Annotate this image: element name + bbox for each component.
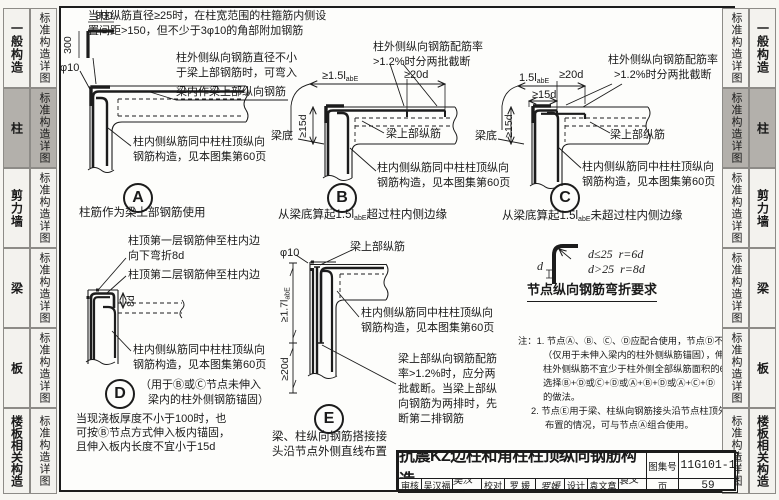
detail-e-caption1: 梁、柱纵向钢筋搭接接 [272, 430, 387, 446]
phi10-label-e: φ10 [280, 246, 299, 261]
detail-d-note3: 且伸入板内长度不宜小于15d [76, 440, 215, 455]
note-line-4: 选择Ⓑ+Ⓓ或Ⓒ+Ⓓ或Ⓐ+Ⓑ+Ⓓ或Ⓐ+Ⓒ+Ⓓ [543, 375, 715, 389]
inner-bar-note-a1: 柱内侧纵筋同中柱柱顶纵向 [133, 135, 265, 150]
cut-annotation-b1: 柱外侧纵向钢筋配筋率 [373, 40, 483, 55]
bend-requirement-symbol [546, 246, 578, 284]
sidebar-section-cell: 一般构造 [3, 8, 30, 88]
detail-d-note2: 可按Ⓑ节点方式伸入板内锚固， [76, 426, 230, 441]
cut-annotation-c1: 柱外侧纵向钢筋配筋率 [608, 53, 718, 68]
cut-annotation-e1: 梁上部纵向钢筋配筋 [398, 352, 497, 367]
dim-15d-horizontal-c: ≥15d [532, 88, 556, 103]
page-label: 页 [646, 478, 679, 493]
cut-annotation-e4: 向钢筋为两排时，先 [398, 397, 497, 412]
cut-annotation-e2: 率>1.2%时，应分两 [398, 367, 496, 382]
cut-annotation-e5: 断第二排钢筋 [398, 412, 464, 427]
sidebar-item-slab-related[interactable]: 楼板相关构造 标准构造详图 [3, 408, 57, 494]
sidebar-item-slab[interactable]: 板 标准构造详图 [3, 328, 57, 408]
beam-top-bar-label-c: 梁上部纵筋 [610, 128, 665, 143]
review-signature: 吴汉福 [452, 478, 482, 493]
sidebar-right-item-column[interactable]: 标准构造详图 柱 [722, 88, 776, 168]
inner-bar-note-d1: 柱内侧纵筋同中柱柱顶纵向 [133, 343, 265, 358]
detail-c-caption: 从梁底算起1.5labE未超过柱内侧边缘 [502, 209, 683, 225]
dim-1p5labe-b: ≥1.5labE [322, 69, 358, 84]
detail-d-usage1: （用于Ⓑ或Ⓒ节点未伸入 [140, 378, 261, 393]
title-block: 抗震KZ边柱和角柱柱顶纵向钢筋构造 图集号 11G101-1 审核 吴汉福 吴汉… [396, 450, 736, 491]
dim-8d: 8d [124, 289, 138, 313]
sidebar-right-item-shear-wall[interactable]: 标准构造详图 剪力墙 [722, 168, 776, 248]
inner-bar-note-a2: 钢筋构造，见本图集第60页 [133, 150, 266, 165]
corner-bar-note-line1: 当柱纵筋直径≥25时，在柱宽范围的柱箍筋内侧设 [88, 9, 326, 24]
detail-d-usage2: 梁内的柱外侧钢筋锚固） [148, 393, 269, 408]
dim-20d-e: ≥20d [278, 347, 292, 391]
sidebar-right-item-general[interactable]: 标准构造详图 一般构造 [722, 8, 776, 88]
outer-bar-annotation-a1: 柱外侧纵向钢筋直径不小 [176, 51, 297, 66]
inner-bar-note-c2: 钢筋构造，见本图集第60页 [582, 175, 715, 190]
atlas-number-value: 11G101-1 [678, 452, 738, 479]
sidebar-item-beam[interactable]: 梁 标准构造详图 [3, 248, 57, 328]
cut-annotation-c2: >1.2%时分两批截断 [614, 68, 712, 83]
detail-d-note1: 当现浇板厚度不小于100时，也 [76, 412, 226, 427]
dim-15d-vertical-c: ≥15d [502, 106, 516, 146]
detail-d-marker: D [105, 379, 135, 409]
inner-bar-note-b1: 柱内侧纵筋同中柱柱顶纵向 [377, 161, 509, 176]
dim-1p5labe-c: 1.5labE [519, 71, 549, 86]
note-line-5: 的做法。 [543, 389, 580, 403]
cut-annotation-b2: >1.2%时分两批截断 [373, 55, 471, 70]
inner-bar-note-e1: 柱内侧纵筋同中柱柱顶纵向 [361, 306, 493, 321]
review-label: 审核 [398, 478, 422, 493]
atlas-page: { "sidebar": { "common_label": "标准构造详图",… [0, 0, 779, 500]
beam-top-bar-label-e: 梁上部纵筋 [350, 240, 405, 255]
note-line-7: 布置的情况，可与节点Ⓐ组合使用。 [545, 417, 694, 431]
sidebar-right-item-beam[interactable]: 标准构造详图 梁 [722, 248, 776, 328]
inner-bar-note-b2: 钢筋构造，见本图集第60页 [377, 176, 510, 191]
atlas-number-label: 图集号 [646, 452, 679, 479]
dim-20d-c: ≥20d [559, 68, 583, 83]
top-layer2-annotation-d: 柱顶第二层钢筋伸至柱内边 [128, 268, 260, 283]
outer-bar-annotation-a3: 梁内作梁上部纵向钢筋 [176, 85, 286, 100]
beam-top-bar-label-b: 梁上部纵筋 [386, 127, 441, 142]
sidebar-common-cell: 标准构造详图 [30, 8, 57, 88]
detail-a-caption: 柱筋作为梁上部钢筋使用 [79, 206, 206, 222]
dim-1p7labe-e: ≥1.7labE [277, 270, 292, 340]
sidebar-item-column[interactable]: 柱 标准构造详图 [3, 88, 57, 168]
detail-e-caption2: 头沿节点外侧直线布置 [272, 445, 387, 461]
dim-300-horizontal: 300 [92, 9, 116, 23]
sheet-title: 抗震KZ边柱和角柱柱顶纵向钢筋构造 [398, 452, 647, 479]
beam-bottom-label-b: 梁底 [271, 129, 293, 144]
top-layer1-bend-annotation-d: 向下弯折8d [128, 249, 184, 264]
detail-b-caption: 从梁底算起1.5labE超过柱内侧边缘 [278, 208, 447, 224]
design-name: 袁文章 [587, 478, 619, 493]
dim-20d-b: ≥20d [404, 68, 428, 83]
bend-d-label: d [537, 258, 543, 274]
bend-requirement-title: 节点纵向钢筋弯折要求 [527, 281, 657, 302]
phi10-label-a: φ10 [60, 61, 79, 76]
corner-bar-note-line2: 置间距>150，但不少于3φ10的角部附加钢筋 [88, 24, 303, 39]
top-layer1-annotation-d: 柱顶第一层钢筋伸至柱内边 [128, 234, 260, 249]
bend-rule-1: d≤25 r=6d [588, 246, 643, 262]
design-signature: 袁文章 [618, 478, 647, 493]
inner-bar-note-d2: 钢筋构造，见本图集第60页 [133, 358, 266, 373]
beam-bottom-label-c: 梁底 [475, 129, 497, 144]
inner-bar-note-c1: 柱内侧纵筋同中柱柱顶纵向 [582, 160, 714, 175]
proofread-signature: 罗媛 [535, 478, 565, 493]
sidebar-item-general[interactable]: 一般构造 标准构造详图 [3, 8, 57, 88]
proofread-name: 罗 媛 [504, 478, 536, 493]
sidebar-item-shear-wall[interactable]: 剪力墙 标准构造详图 [3, 168, 57, 248]
design-label: 设计 [564, 478, 588, 493]
outer-bar-annotation-a2: 于梁上部钢筋时，可弯入 [176, 66, 297, 81]
dim-15d-b: ≥15d [296, 106, 310, 146]
cut-annotation-e3: 批截断。当梁上部纵 [398, 382, 497, 397]
bend-rule-2: d>25 r=8d [588, 261, 645, 277]
page-number: 59 [678, 478, 738, 493]
sidebar-right-item-slab[interactable]: 标准构造详图 板 [722, 328, 776, 408]
review-name: 吴汉福 [421, 478, 453, 493]
dim-300-vertical: 300 [61, 30, 75, 60]
inner-bar-note-e2: 钢筋构造，见本图集第60页 [361, 321, 494, 336]
proofread-label: 校对 [481, 478, 505, 493]
